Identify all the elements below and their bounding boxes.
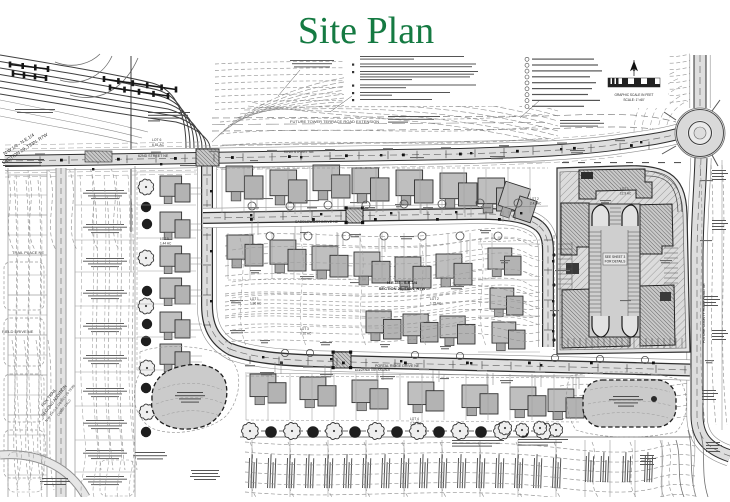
svg-text:KING STREET NE: KING STREET NE [284, 150, 314, 154]
svg-text:N.E.1/4 - S.E.1/4: N.E.1/4 - S.E.1/4 [387, 280, 418, 285]
svg-text:SCALE: 1"=60': SCALE: 1"=60' [623, 98, 645, 102]
svg-text:12.9 AC: 12.9 AC [620, 192, 632, 196]
svg-text:ELEVATED CROSSWALK: ELEVATED CROSSWALK [355, 368, 390, 372]
svg-text:LOT 5: LOT 5 [160, 237, 169, 241]
svg-text:1.44 AC: 1.44 AC [160, 242, 172, 246]
svg-text:FUTURE COUNTY HOME ROAD NE: FUTURE COUNTY HOME ROAD NE [702, 283, 706, 343]
svg-text:SADDLEWORT DRIVE NE: SADDLEWORT DRIVE NE [295, 220, 339, 224]
svg-text:LOT 2: LOT 2 [430, 297, 439, 301]
svg-text:62ND STREET NE: 62ND STREET NE [138, 154, 169, 158]
svg-text:LOT 4: LOT 4 [410, 417, 419, 421]
svg-text:1.96 AC: 1.96 AC [250, 302, 262, 306]
svg-text:2.41 AC: 2.41 AC [530, 202, 542, 206]
svg-text:0.92 AC: 0.92 AC [300, 332, 312, 336]
svg-text:Site Plan: Site Plan [298, 10, 434, 52]
svg-text:6.81 AC: 6.81 AC [152, 143, 165, 147]
svg-text:2.70 AC: 2.70 AC [410, 422, 422, 426]
svg-text:SEE SHEET 3: SEE SHEET 3 [605, 255, 626, 259]
svg-text:FOR DETAILS: FOR DETAILS [605, 260, 626, 264]
svg-text:GRAPHIC SCALE IN FEET: GRAPHIC SCALE IN FEET [615, 93, 654, 97]
svg-text:LOT 1: LOT 1 [620, 187, 629, 191]
svg-text:LOT 6: LOT 6 [152, 138, 161, 142]
svg-text:LOT 2: LOT 2 [530, 197, 539, 201]
svg-text:FUTURE TOWER TERRACE ROAD EXTE: FUTURE TOWER TERRACE ROAD EXTENSION [290, 119, 379, 124]
